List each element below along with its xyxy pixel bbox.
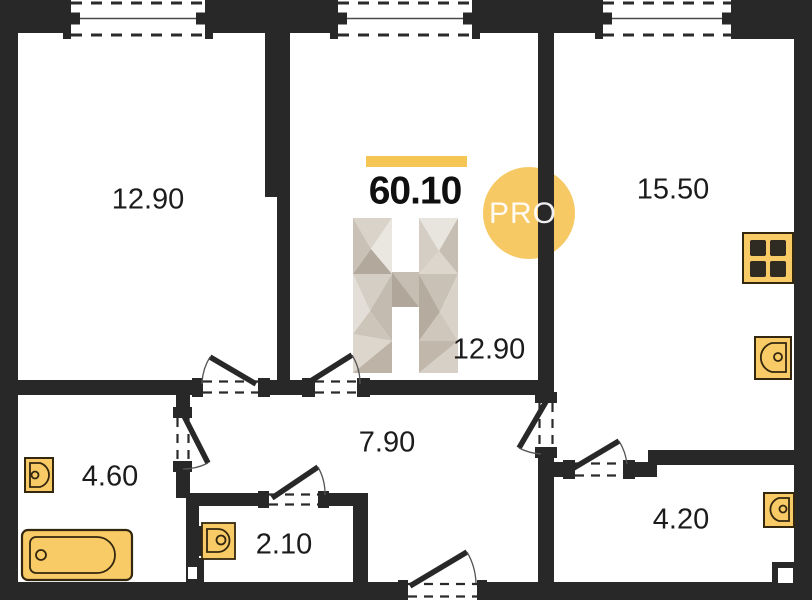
door-opening-dashes	[178, 382, 624, 597]
room-area-label-bathroom: 4.60	[82, 463, 138, 492]
sink-icon	[764, 493, 794, 527]
room-area-label-middle: 12.90	[453, 336, 526, 365]
toilet-icon	[190, 523, 235, 559]
sink-icon	[25, 458, 53, 492]
sink-icon	[755, 337, 791, 379]
room-area-label-hallway: 7.90	[359, 429, 415, 458]
room-area-label-top-right: 15.50	[637, 176, 710, 205]
door-swing-icon	[183, 414, 208, 469]
stove-icon	[743, 233, 793, 283]
door-swing-icon	[410, 552, 476, 586]
room-area-label-storage: 4.20	[653, 506, 709, 535]
pro-badge-label: PRO	[489, 199, 557, 229]
door-swing-icon	[572, 441, 627, 469]
door-swing-icon	[306, 355, 360, 384]
door-swing-icon	[519, 400, 547, 454]
window-icons	[63, 0, 739, 39]
room-area-label-wc: 2.10	[256, 531, 312, 560]
accent-underline	[366, 156, 467, 167]
window-icon	[63, 0, 213, 39]
duct-openings	[188, 567, 793, 583]
door-frames	[173, 378, 635, 600]
window-icon	[330, 0, 480, 39]
window-icon	[595, 0, 739, 39]
bathtub-icon	[22, 530, 132, 580]
door-swing-icon	[272, 467, 325, 498]
room-area-label-top-left: 12.90	[112, 186, 185, 215]
total-area-label: 60.10	[369, 172, 462, 211]
floorplan: 60.10 PRO 12.90 15.50 12.90 7.90 4.60 2.…	[0, 0, 812, 600]
logo-h-icon	[353, 218, 458, 373]
door-swing-icon	[202, 357, 256, 384]
